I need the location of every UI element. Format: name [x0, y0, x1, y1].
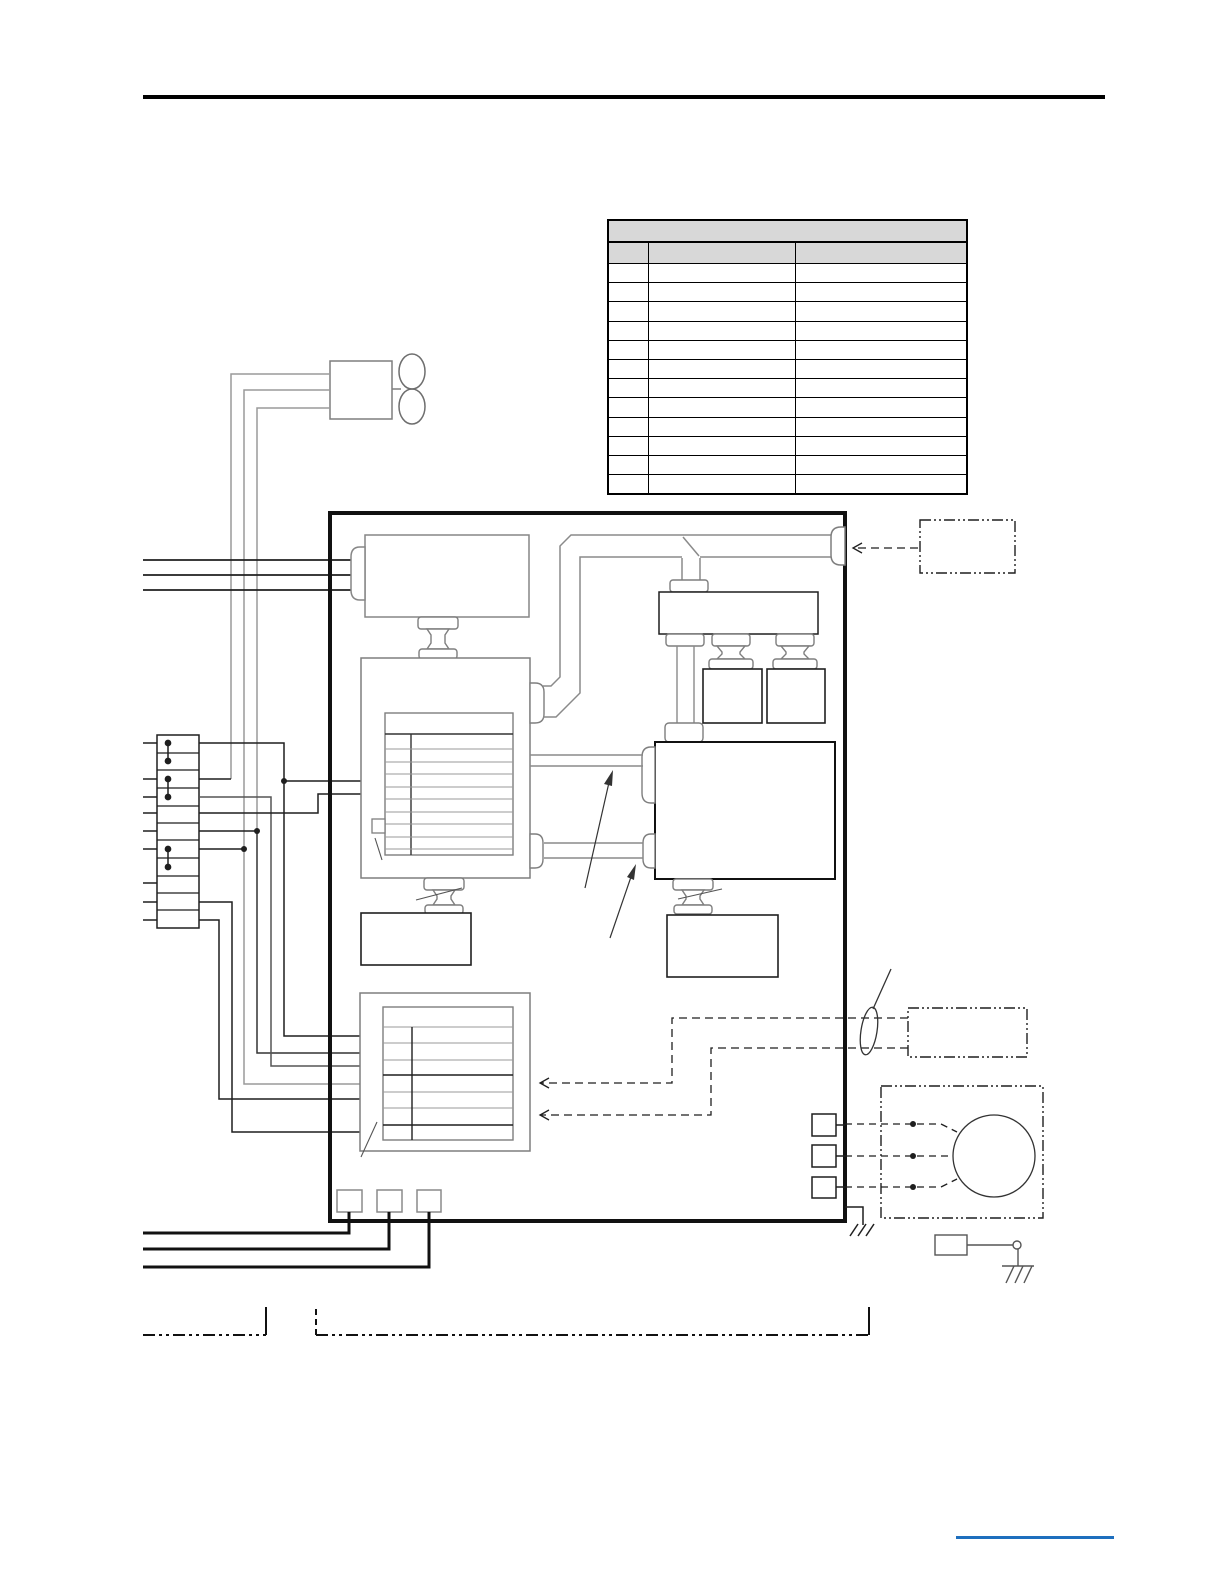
fan-blades-icon — [399, 354, 425, 424]
fan-motor-box — [330, 361, 392, 419]
bottom-terminals — [337, 1190, 441, 1212]
ground-symbol-unit — [845, 1207, 874, 1236]
pipe-outlet-port — [831, 527, 845, 565]
terminal-stubs — [143, 743, 157, 920]
connecting-pipes — [530, 755, 643, 858]
compressor-box — [642, 742, 835, 879]
fan-wires — [231, 374, 370, 1084]
connector-bump — [351, 547, 365, 600]
junction-dots — [241, 778, 373, 1087]
pipe-port-upper — [530, 683, 544, 723]
strip-wiring — [199, 743, 383, 1132]
motor-terminals — [812, 1114, 845, 1198]
manual-page — [0, 0, 1224, 1584]
inlet-nut — [670, 580, 708, 592]
compressor-port-lower — [643, 834, 655, 868]
solenoid-box-2 — [767, 669, 825, 723]
component-box-left — [361, 913, 471, 965]
supply-wires — [143, 560, 352, 590]
valve-symbol-1 — [418, 617, 458, 659]
callout-box-top-right — [920, 520, 1015, 573]
valve-symbol-2 — [416, 878, 464, 914]
callout-box-middle-right — [908, 1008, 1027, 1057]
component-box-right — [667, 915, 778, 977]
pcb-grid-upper — [361, 658, 544, 878]
terminal-strip-left — [143, 735, 199, 928]
solenoid-box-1 — [703, 669, 762, 723]
power-terminal-box — [351, 535, 529, 617]
legend-brackets — [143, 1307, 869, 1335]
ground-symbol-external — [935, 1235, 1034, 1283]
pipe-port-lower — [530, 834, 543, 868]
motor-leads — [845, 1124, 957, 1187]
pcb-grid-lower — [360, 993, 530, 1157]
header-bar — [659, 592, 818, 634]
callout-box-motor — [881, 1086, 1043, 1218]
compressor-port-upper — [642, 747, 655, 803]
motor-circle — [953, 1115, 1035, 1197]
fan-unit — [330, 354, 425, 424]
footer-link-rule[interactable] — [956, 1536, 1114, 1539]
connector-tab — [372, 819, 385, 833]
valve-symbol-3 — [673, 879, 722, 914]
lead-dots — [910, 1121, 916, 1190]
grommet-symbol — [857, 969, 891, 1056]
callout-boxes — [881, 520, 1043, 1218]
pipe-leader-arrows — [585, 770, 636, 938]
valve-header-assembly — [659, 580, 825, 742]
wiring-diagram — [0, 0, 1224, 1584]
